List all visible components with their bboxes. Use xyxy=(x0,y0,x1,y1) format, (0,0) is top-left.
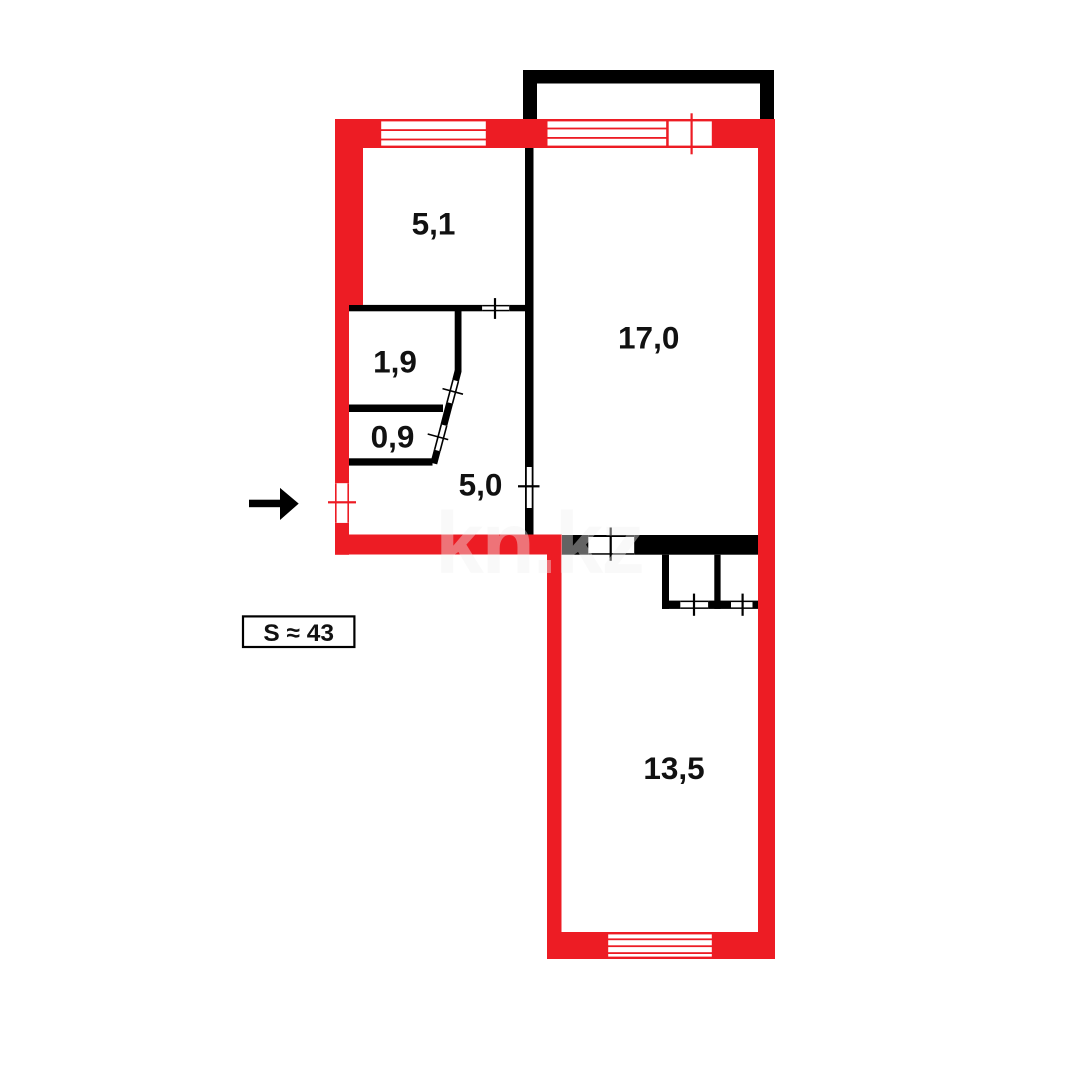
svg-text:S ≈ 43: S ≈ 43 xyxy=(263,620,334,647)
svg-text:kn.kz: kn.kz xyxy=(435,495,643,592)
svg-text:13,5: 13,5 xyxy=(643,750,704,786)
svg-text:5,1: 5,1 xyxy=(412,206,456,242)
svg-text:17,0: 17,0 xyxy=(618,319,679,355)
svg-text:1,9: 1,9 xyxy=(373,343,417,379)
svg-text:0,9: 0,9 xyxy=(371,419,415,455)
